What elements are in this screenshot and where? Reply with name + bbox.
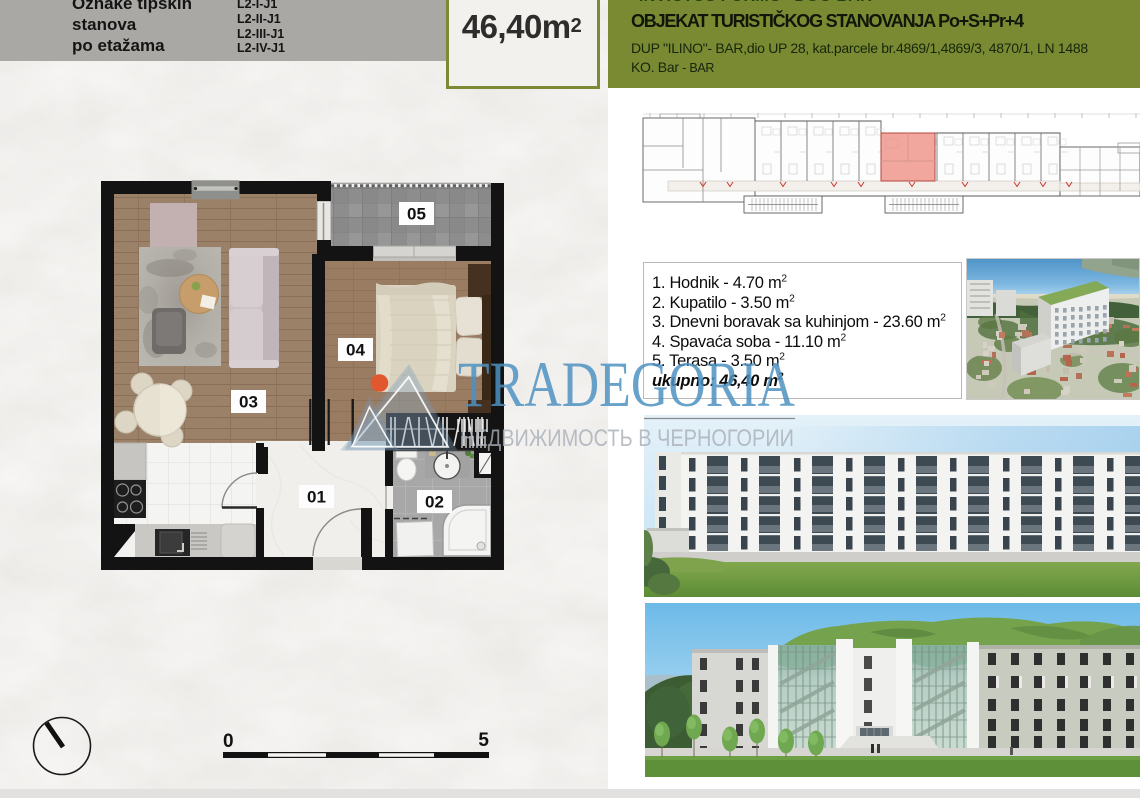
- svg-text:03: 03: [239, 393, 258, 412]
- svg-text:НЕДВИЖИМОСТЬ В ЧЕРНОГОРИИ: НЕДВИЖИМОСТЬ В ЧЕРНОГОРИИ: [460, 425, 794, 452]
- svg-text:TRADEGORIA: TRADEGORIA: [458, 349, 795, 421]
- svg-text:5: 5: [478, 730, 489, 751]
- svg-text:04: 04: [346, 341, 365, 360]
- svg-text:0: 0: [223, 731, 234, 752]
- svg-text:05: 05: [407, 205, 426, 224]
- svg-text:02: 02: [425, 493, 444, 512]
- svg-text:01: 01: [307, 488, 326, 507]
